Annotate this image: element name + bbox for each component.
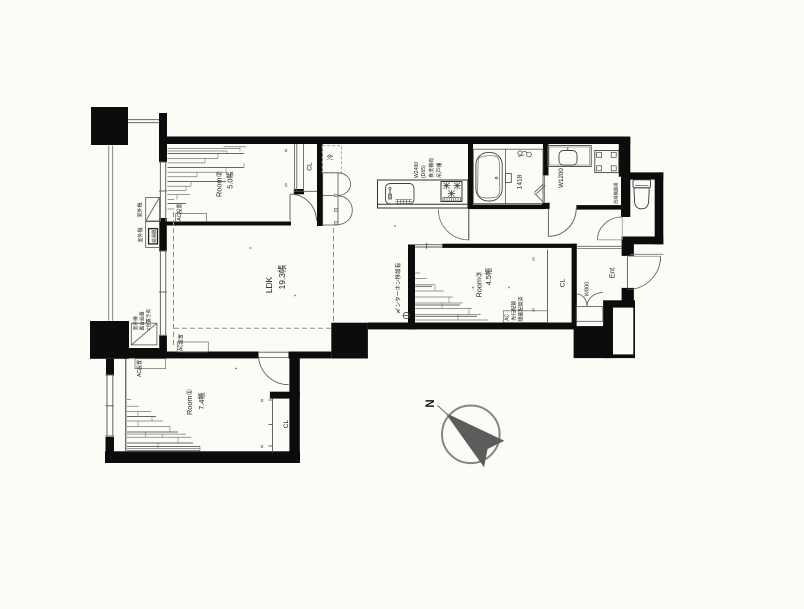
svg-text:S: S	[532, 257, 535, 262]
svg-text:Room②: Room②	[214, 171, 223, 197]
svg-text:CL: CL	[283, 419, 290, 428]
svg-text:AC設置: AC設置	[136, 360, 143, 377]
svg-text:AC: AC	[505, 313, 511, 320]
svg-text:室外機: 室外機	[132, 316, 139, 331]
svg-text:4.5帳: 4.5帳	[484, 268, 493, 285]
svg-text:2台置き有: 2台置き有	[145, 308, 152, 330]
svg-text:W1200: W1200	[558, 168, 565, 188]
svg-text:5.0帳: 5.0帳	[225, 171, 234, 188]
svg-text:S: S	[261, 444, 264, 449]
svg-text:19.3帳: 19.3帳	[277, 264, 287, 289]
svg-text:(D65): (D65)	[421, 165, 427, 178]
svg-text:冷: 冷	[326, 154, 334, 160]
svg-text:7.4帳: 7.4帳	[197, 392, 206, 409]
svg-text:S: S	[261, 398, 264, 403]
svg-text:CL: CL	[560, 278, 567, 287]
svg-text:W2400: W2400	[414, 162, 420, 178]
svg-text:隱蔽配管済: 隱蔽配管済	[517, 296, 524, 321]
svg-text:Room①: Room①	[185, 389, 194, 415]
svg-text:Room③: Room③	[474, 271, 483, 297]
svg-text:LDK: LDK	[264, 276, 274, 293]
svg-text:給湯器: 給湯器	[151, 229, 158, 243]
svg-text:S: S	[285, 183, 288, 188]
svg-text:Ent: Ent	[609, 268, 616, 279]
svg-text:1418: 1418	[516, 174, 523, 189]
svg-text:CL: CL	[307, 162, 314, 171]
svg-text:W800: W800	[584, 282, 590, 297]
svg-text:先行配管: 先行配管	[511, 301, 518, 321]
svg-text:AC設置: AC設置	[178, 334, 185, 351]
svg-text:置台設置: 置台設置	[139, 311, 146, 330]
svg-text:洗濣機置場: 洗濣機置場	[613, 182, 620, 204]
svg-text:S: S	[532, 308, 535, 313]
svg-text:AC設置: AC設置	[176, 204, 183, 221]
svg-text:吊戸棚: 吊戸棚	[436, 163, 443, 178]
svg-text:室外機: 室外機	[137, 227, 144, 242]
svg-text:室外機: 室外機	[137, 202, 144, 217]
svg-text:N: N	[425, 399, 437, 407]
svg-text:S: S	[285, 148, 288, 153]
svg-text:食洗機有: 食洗機有	[428, 158, 435, 178]
svg-text:インターホン移設有: インターホン移設有	[394, 262, 402, 313]
